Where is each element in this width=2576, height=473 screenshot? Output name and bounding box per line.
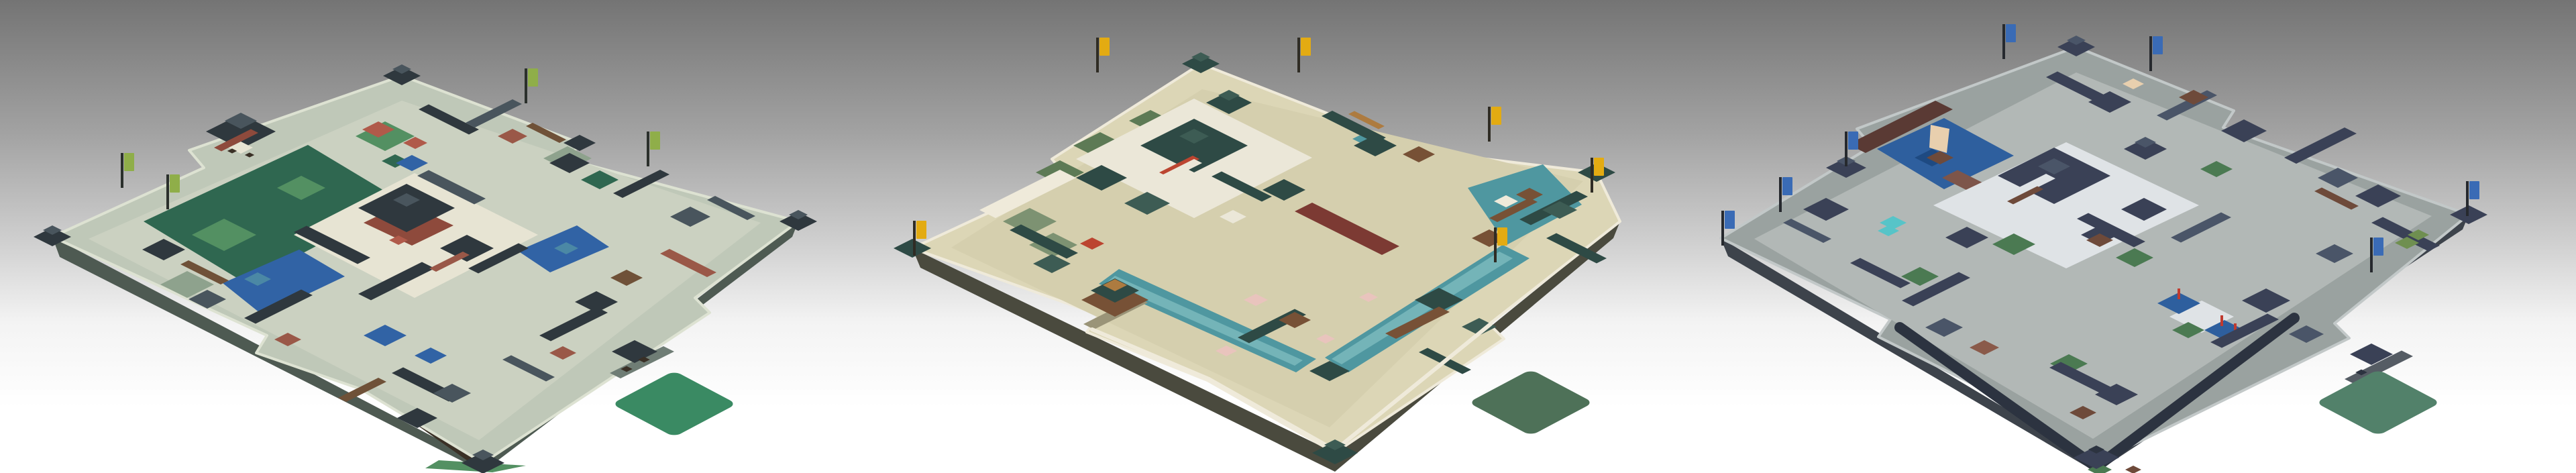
outer-debris <box>2125 466 2141 473</box>
green-banner-icon <box>648 132 660 166</box>
map-base-diamond-1 <box>612 371 737 437</box>
yellow-banner-icon <box>1299 38 1311 72</box>
artboard <box>0 0 2576 473</box>
yellow-banner-icon <box>1489 107 1501 142</box>
red-pole <box>2220 315 2223 326</box>
blue-banner-icon <box>2151 36 2163 71</box>
map-base-diamond-2 <box>1468 370 1594 436</box>
red-pole <box>2178 288 2180 299</box>
green-banner-icon <box>526 68 538 103</box>
blue-banner-icon <box>2004 24 2016 59</box>
yellow-banner-icon <box>1097 38 1110 72</box>
concept-art-scene <box>0 0 2576 473</box>
roof-block <box>2284 127 2357 164</box>
map-base-diamond-3 <box>2316 370 2441 436</box>
green-banner-icon <box>122 153 134 188</box>
